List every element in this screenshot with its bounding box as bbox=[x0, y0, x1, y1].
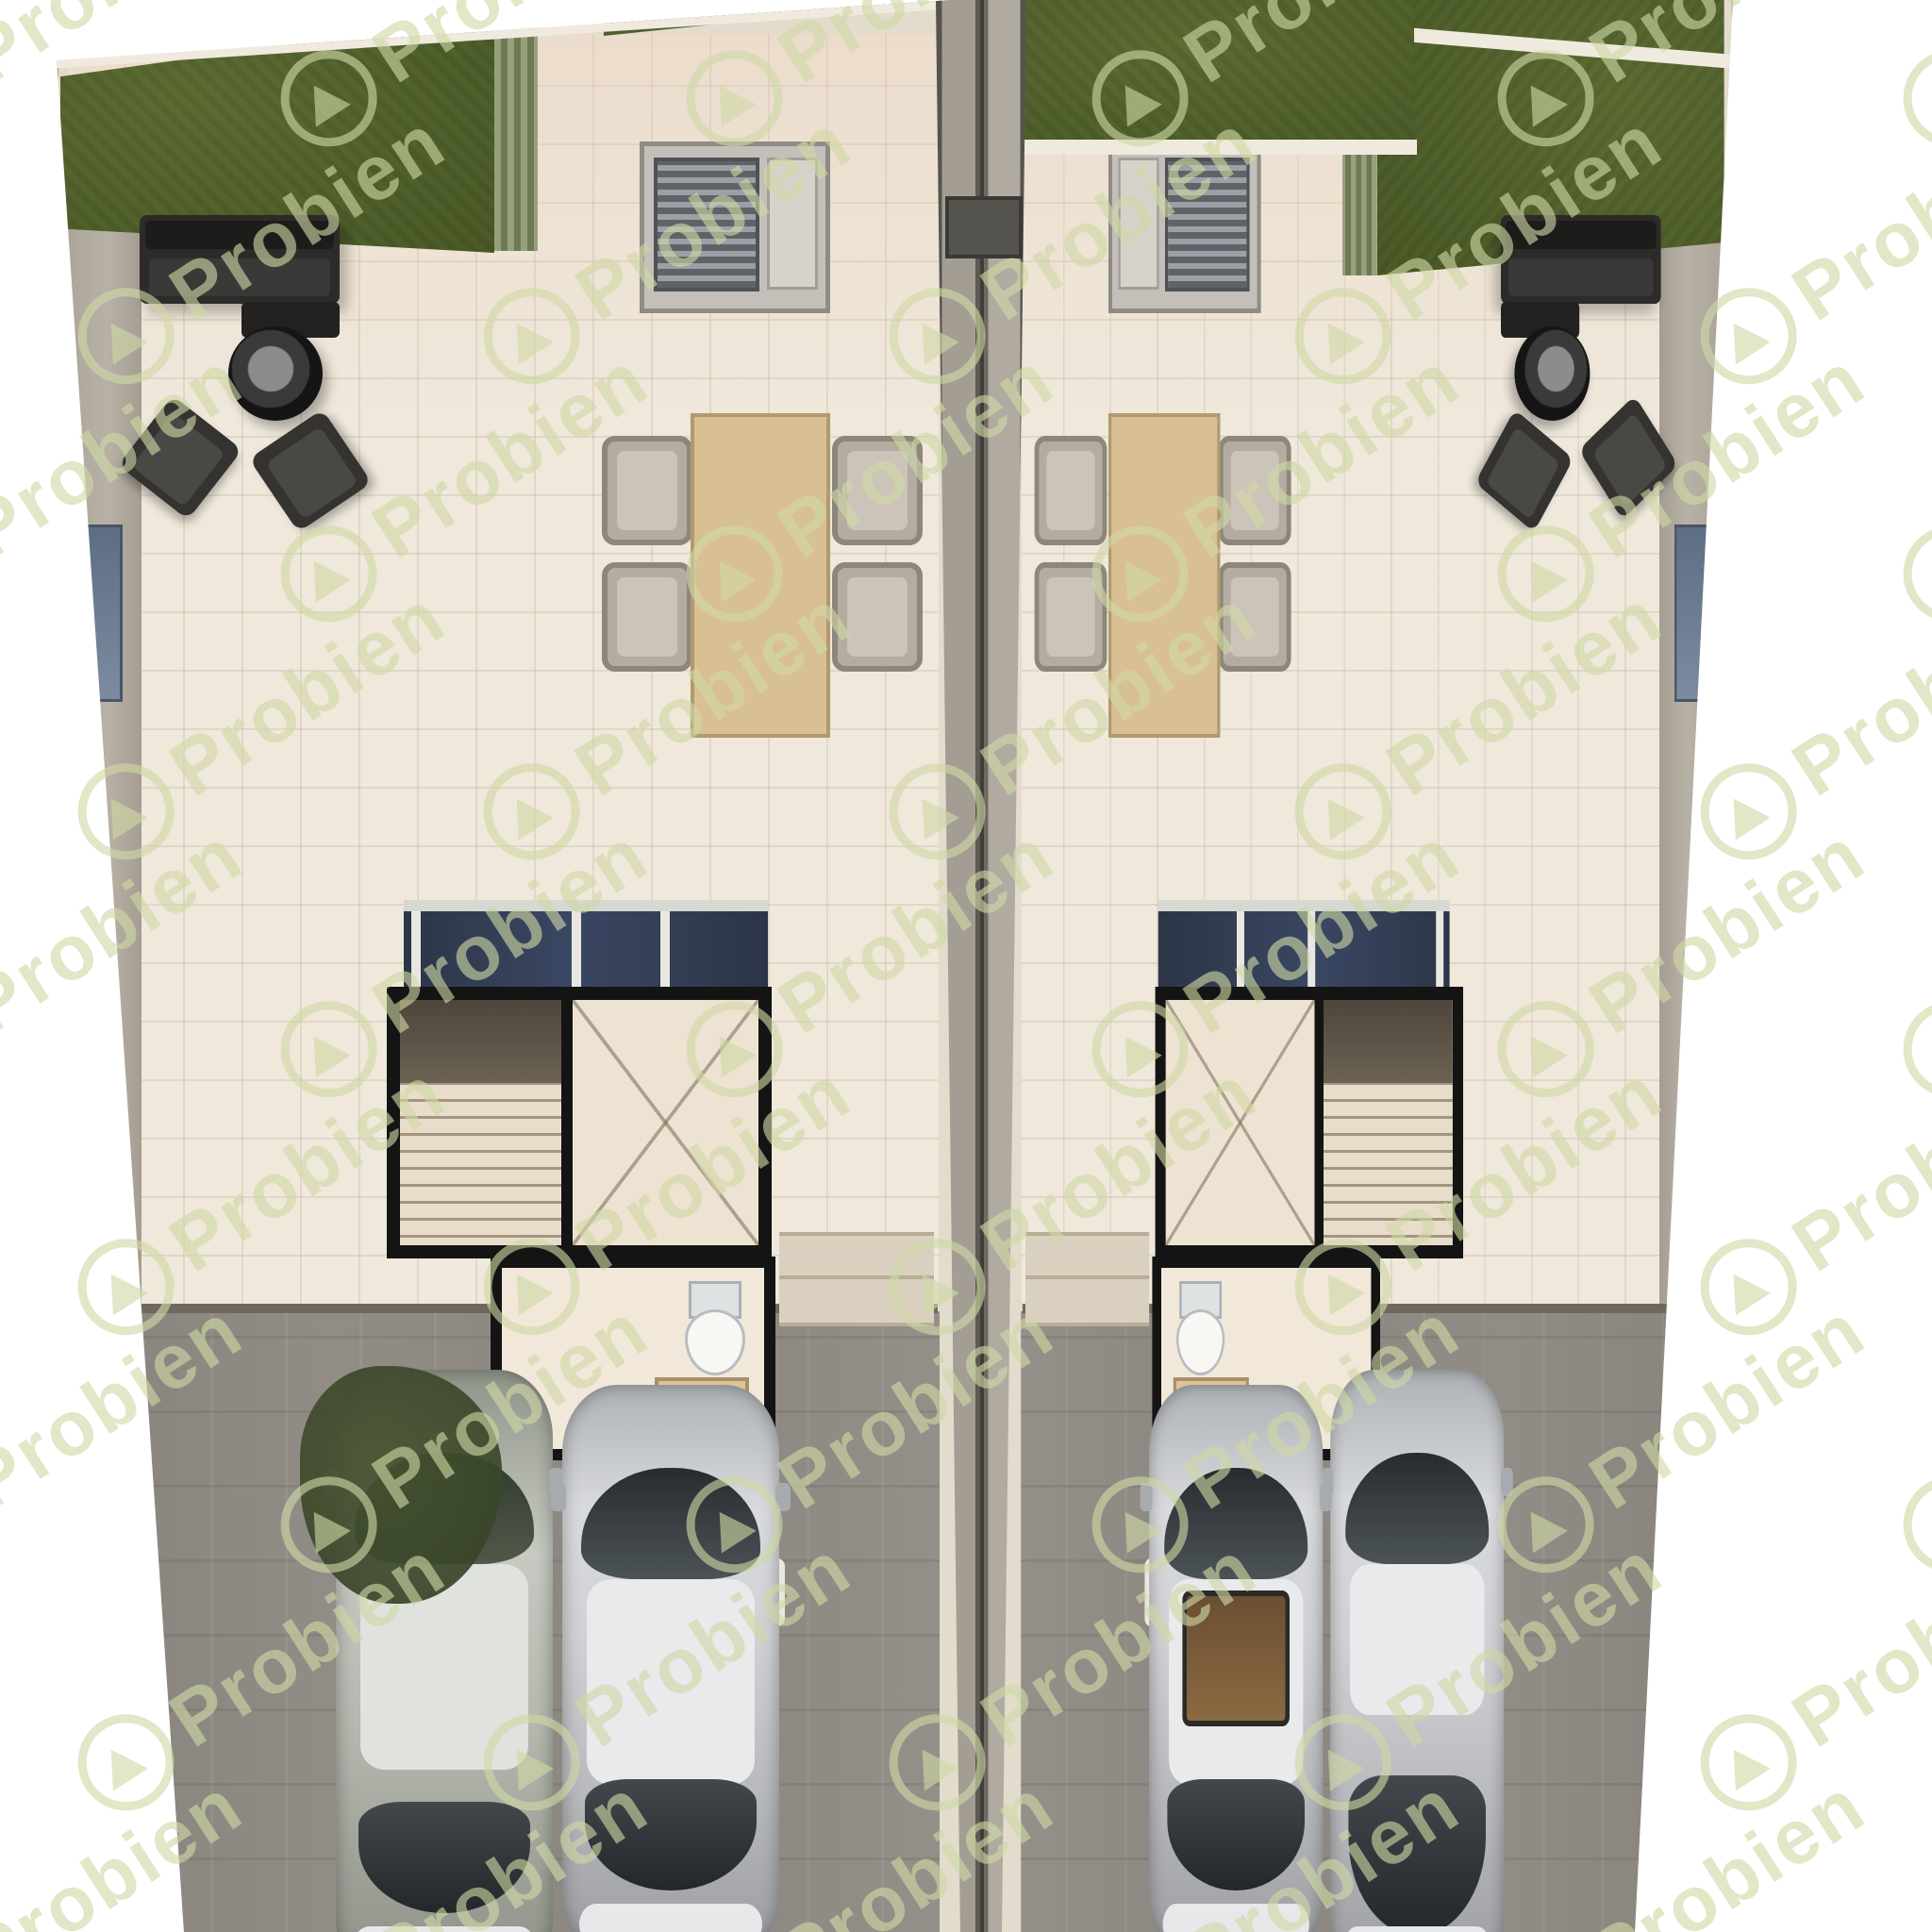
car bbox=[1149, 1385, 1323, 1932]
watermark-text: Probien bbox=[1777, 97, 1932, 340]
dining-table bbox=[691, 413, 830, 738]
dining-chair bbox=[1035, 436, 1108, 545]
round-coffee-table bbox=[228, 326, 323, 421]
boundary-wall bbox=[1021, 140, 1417, 155]
entry-steps bbox=[779, 1232, 934, 1326]
watermark: Probien bbox=[1885, 807, 1932, 1116]
grass-garden bbox=[1024, 0, 1414, 143]
round-coffee-table bbox=[1514, 326, 1590, 421]
car-mirror bbox=[1501, 1468, 1513, 1496]
dining-chair bbox=[1035, 562, 1108, 672]
car-sunroof bbox=[1182, 1591, 1290, 1726]
hedge bbox=[494, 15, 538, 251]
unit-left bbox=[57, 0, 948, 1932]
toilet-bowl bbox=[685, 1309, 745, 1375]
probien-logo-icon bbox=[1885, 508, 1932, 641]
stair-wall bbox=[1314, 1000, 1324, 1245]
floor-plan-render: ProbienProbienProbienProbienProbienProbi… bbox=[0, 0, 1932, 1932]
watermark: Probien bbox=[1885, 1282, 1932, 1591]
stair-void bbox=[1324, 1000, 1453, 1083]
watermark: Probien bbox=[1682, 1520, 1932, 1829]
car-bumper bbox=[1344, 1926, 1491, 1932]
ac-unit bbox=[1108, 142, 1261, 313]
car-mirror bbox=[1141, 1483, 1153, 1511]
stair-void bbox=[400, 1000, 561, 1083]
dining-chair bbox=[602, 436, 692, 545]
watermark: Probien bbox=[1682, 569, 1932, 878]
sofa bbox=[140, 215, 340, 304]
staircase-block bbox=[387, 987, 772, 1258]
probien-logo-icon bbox=[1682, 1696, 1815, 1829]
dining-table bbox=[1108, 413, 1220, 738]
dining-chair bbox=[1219, 436, 1291, 545]
staircase bbox=[1166, 1000, 1453, 1245]
toilet bbox=[1176, 1281, 1224, 1375]
probien-logo-icon bbox=[1682, 1221, 1815, 1354]
toilet bbox=[685, 1281, 745, 1375]
car-roof bbox=[1350, 1564, 1484, 1715]
watermark-text: Probien bbox=[1777, 1048, 1932, 1291]
unit-right bbox=[1014, 0, 1733, 1932]
car-bumper bbox=[353, 1926, 536, 1932]
probien-logo-icon bbox=[1885, 1458, 1932, 1591]
probien-logo-icon bbox=[1885, 32, 1932, 165]
party-wall-divider bbox=[936, 0, 1026, 1932]
dining-chair bbox=[832, 562, 923, 672]
watermark: Probien bbox=[1885, 1757, 1932, 1932]
watermark-text: Probien bbox=[1777, 1524, 1932, 1766]
car bbox=[1330, 1370, 1504, 1932]
stair-wall bbox=[561, 1000, 573, 1245]
canopy-post bbox=[411, 911, 421, 989]
car-roof bbox=[587, 1579, 755, 1785]
stair-landing bbox=[573, 1000, 758, 1245]
probien-logo-icon bbox=[1682, 745, 1815, 878]
ac-panel bbox=[767, 158, 818, 290]
entry-steps bbox=[1025, 1232, 1149, 1326]
car bbox=[562, 1385, 779, 1932]
unit-content bbox=[57, 0, 948, 1932]
dining-chair bbox=[602, 562, 692, 672]
entry-railing bbox=[404, 900, 768, 911]
side-window bbox=[58, 525, 123, 702]
watermark: Probien bbox=[1682, 1044, 1932, 1354]
car-mirror bbox=[1320, 1483, 1332, 1511]
lot-boundary-left bbox=[0, 60, 59, 1932]
ac-panel bbox=[1118, 158, 1158, 290]
dining-chair bbox=[1219, 562, 1291, 672]
canopy-post bbox=[572, 911, 581, 989]
canopy-post bbox=[1436, 911, 1443, 989]
ac-unit bbox=[640, 142, 830, 313]
staircase-block bbox=[1156, 987, 1463, 1258]
site-plan bbox=[0, 0, 1932, 1932]
car-bumper bbox=[579, 1904, 762, 1932]
car-bumper bbox=[1163, 1904, 1309, 1932]
watermark: Probien bbox=[1885, 331, 1932, 641]
side-passage bbox=[1659, 221, 1727, 1311]
stair-flight bbox=[1324, 1000, 1453, 1245]
entry-canopy bbox=[404, 911, 768, 989]
divider-cap bbox=[945, 196, 1023, 258]
canopy-post bbox=[660, 911, 670, 989]
entry-canopy bbox=[1158, 911, 1450, 989]
dining-chair bbox=[832, 436, 923, 545]
unit-content bbox=[1014, 0, 1727, 1932]
entry-railing bbox=[1158, 900, 1450, 911]
probien-logo-icon bbox=[1885, 983, 1932, 1116]
canopy-post bbox=[1237, 911, 1244, 989]
stair-flight bbox=[400, 1000, 561, 1245]
lot-boundary-right bbox=[1731, 0, 1832, 1932]
staircase bbox=[400, 1000, 758, 1245]
side-window bbox=[1674, 525, 1725, 702]
watermark-text: Probien bbox=[1777, 573, 1932, 815]
ac-grille-icon bbox=[1165, 158, 1250, 291]
toilet-bowl bbox=[1176, 1309, 1224, 1375]
car-mirror bbox=[775, 1483, 791, 1511]
watermark: Probien bbox=[1885, 0, 1932, 165]
car-mirror bbox=[551, 1483, 566, 1511]
ac-grille-icon bbox=[654, 158, 759, 291]
sofa bbox=[1501, 215, 1661, 304]
stair-landing bbox=[1166, 1000, 1315, 1245]
side-passage bbox=[57, 221, 142, 1311]
canopy-post bbox=[1307, 911, 1315, 989]
